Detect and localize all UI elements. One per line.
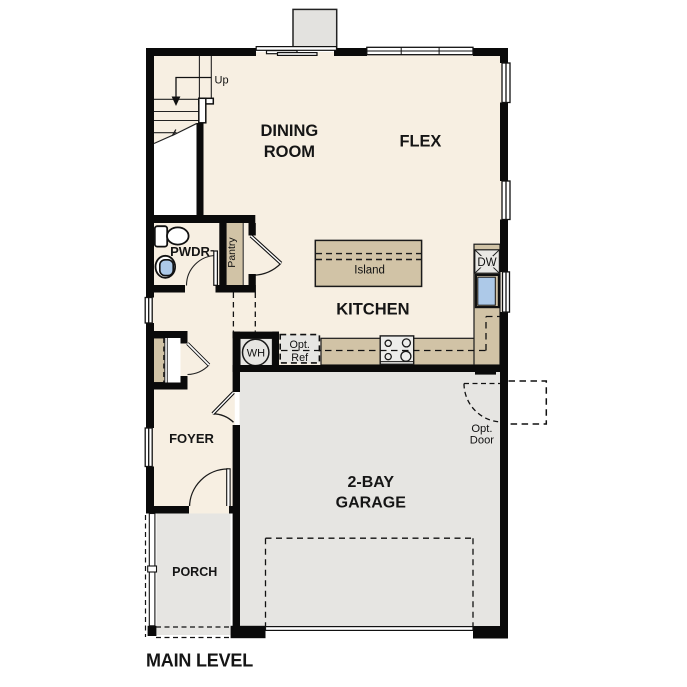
svg-text:PORCH: PORCH bbox=[172, 565, 217, 579]
svg-text:Door: Door bbox=[470, 435, 495, 447]
svg-text:Pantry: Pantry bbox=[226, 237, 238, 268]
svg-text:Up: Up bbox=[215, 75, 229, 87]
svg-text:Opt.: Opt. bbox=[289, 339, 309, 351]
svg-text:ROOM: ROOM bbox=[264, 143, 315, 161]
svg-text:KITCHEN: KITCHEN bbox=[336, 301, 409, 319]
svg-text:DINING: DINING bbox=[261, 122, 319, 140]
svg-text:Opt.: Opt. bbox=[471, 423, 492, 435]
svg-text:MAIN LEVEL: MAIN LEVEL bbox=[146, 651, 253, 671]
svg-text:PWDR: PWDR bbox=[170, 244, 210, 259]
svg-text:2-BAY: 2-BAY bbox=[348, 474, 395, 491]
svg-text:Ref: Ref bbox=[291, 352, 309, 364]
svg-text:FLEX: FLEX bbox=[399, 133, 441, 151]
svg-text:FOYER: FOYER bbox=[169, 431, 214, 446]
svg-text:Island: Island bbox=[354, 265, 385, 277]
svg-text:WH: WH bbox=[247, 348, 265, 360]
svg-text:DW: DW bbox=[477, 257, 496, 269]
svg-text:GARAGE: GARAGE bbox=[336, 495, 407, 512]
